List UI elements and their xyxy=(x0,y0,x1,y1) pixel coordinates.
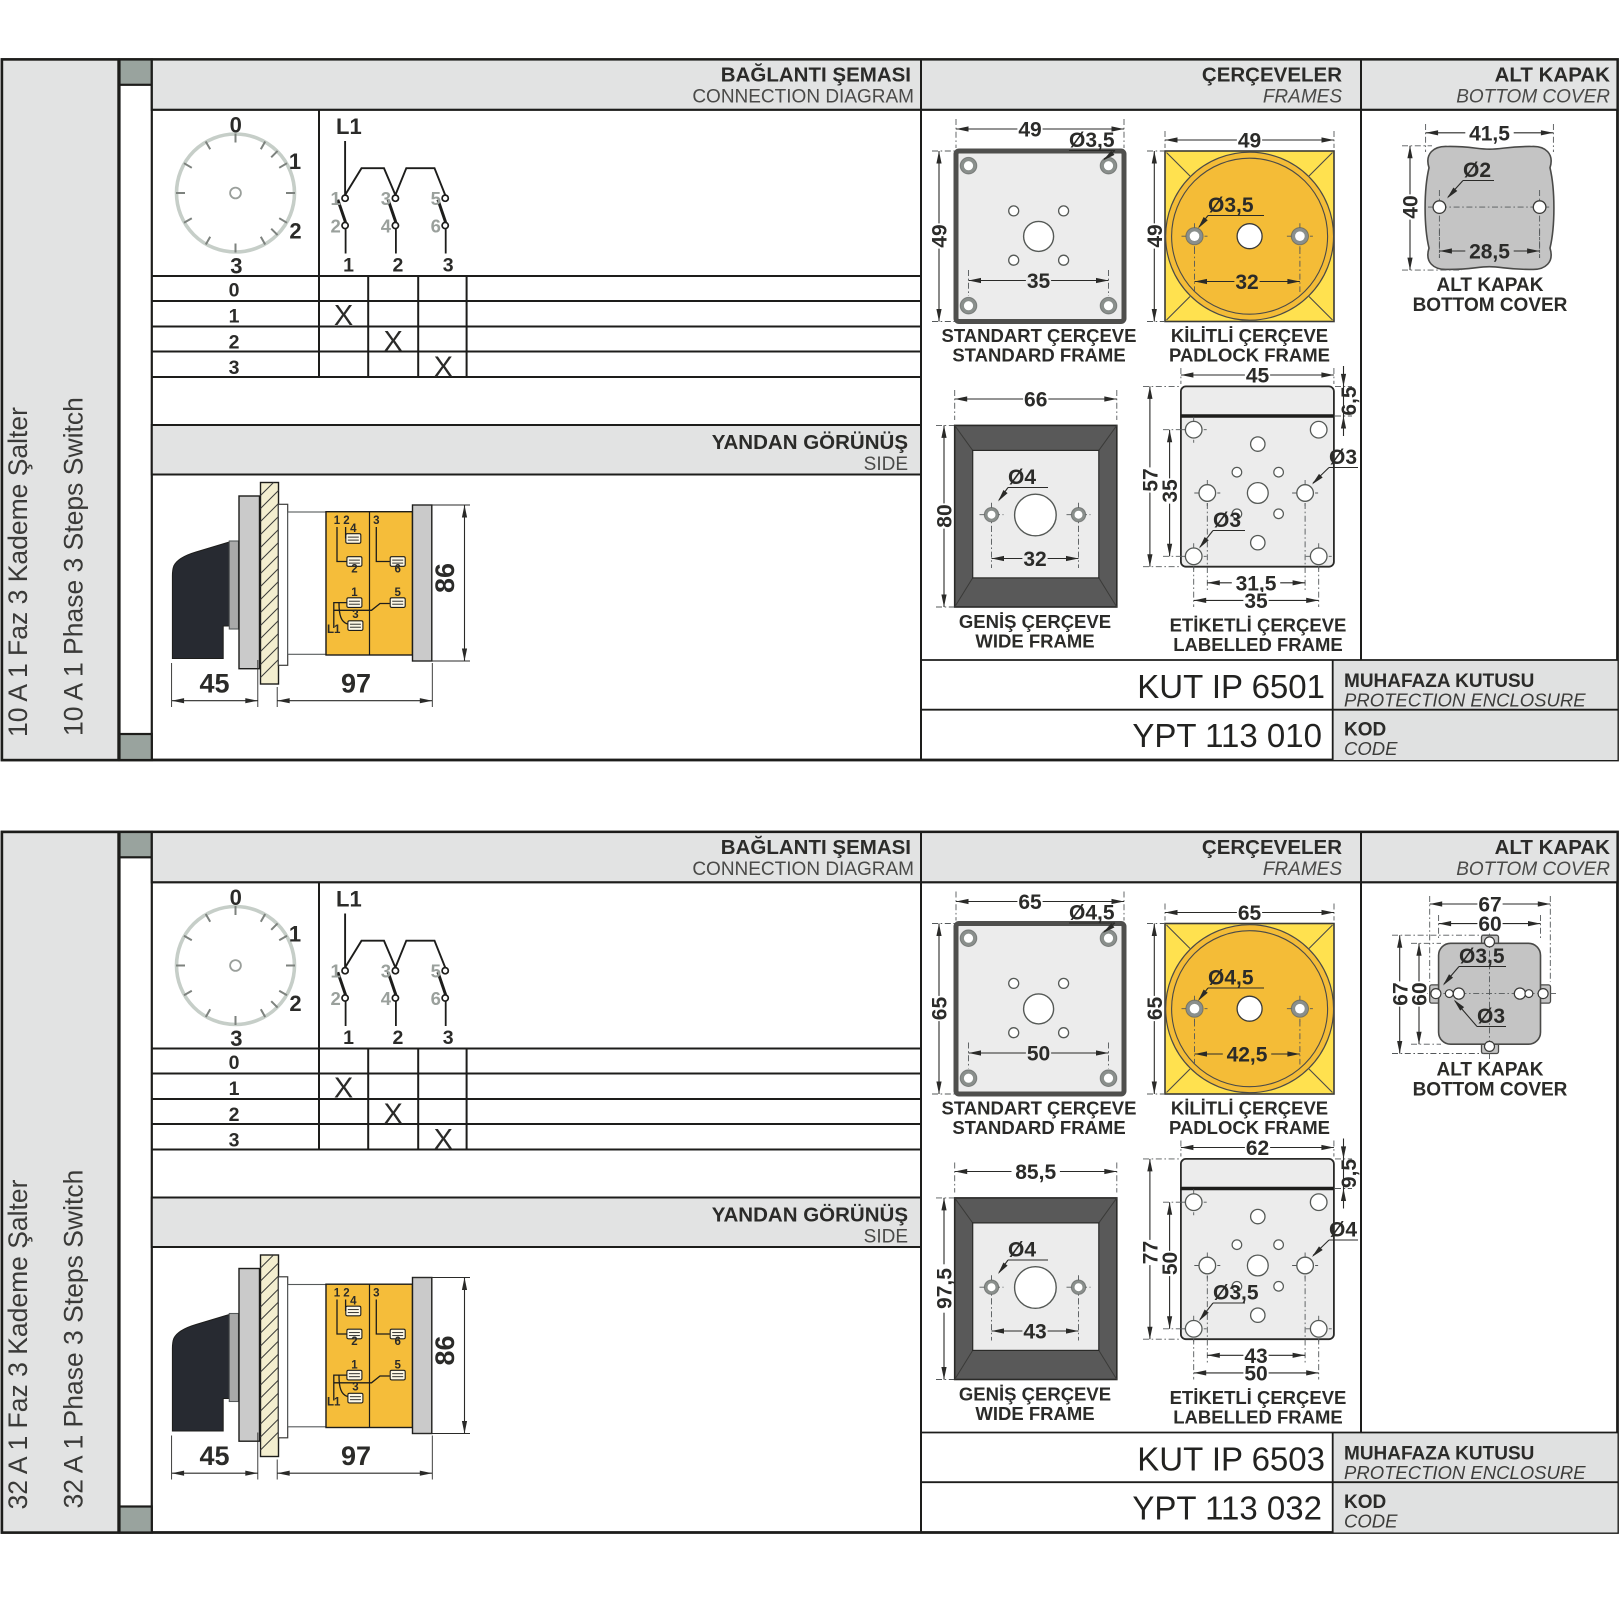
svg-text:60: 60 xyxy=(1409,982,1432,1005)
svg-text:WIDE FRAME: WIDE FRAME xyxy=(975,1403,1094,1424)
svg-text:6,5: 6,5 xyxy=(1338,386,1361,416)
svg-text:BAĞLANTI ŞEMASI: BAĞLANTI ŞEMASI xyxy=(721,63,911,87)
svg-text:Ø4: Ø4 xyxy=(1008,466,1036,489)
svg-text:66: 66 xyxy=(1024,389,1047,412)
svg-text:FRAMES: FRAMES xyxy=(1263,859,1343,880)
svg-text:4: 4 xyxy=(350,1296,357,1308)
svg-text:1: 1 xyxy=(229,1078,240,1100)
svg-text:65: 65 xyxy=(1238,902,1262,925)
svg-text:2: 2 xyxy=(229,332,240,354)
svg-text:3: 3 xyxy=(230,254,242,279)
svg-text:STANDARD FRAME: STANDARD FRAME xyxy=(952,1117,1125,1138)
svg-text:GENİŞ ÇERÇEVE: GENİŞ ÇERÇEVE xyxy=(959,1384,1111,1405)
svg-text:32: 32 xyxy=(1235,271,1258,294)
svg-text:BOTTOM COVER: BOTTOM COVER xyxy=(1456,87,1610,108)
svg-text:ETİKETLİ ÇERÇEVE: ETİKETLİ ÇERÇEVE xyxy=(1170,615,1347,636)
svg-text:LABELLED FRAME: LABELLED FRAME xyxy=(1173,634,1343,655)
svg-text:STANDARD FRAME: STANDARD FRAME xyxy=(952,345,1125,366)
svg-text:X: X xyxy=(334,300,353,332)
svg-text:Ø3: Ø3 xyxy=(1213,509,1241,532)
svg-text:49: 49 xyxy=(929,224,952,247)
svg-text:65: 65 xyxy=(929,997,952,1021)
svg-text:YPT 113 010: YPT 113 010 xyxy=(1132,717,1322,754)
svg-text:X: X xyxy=(384,1099,403,1131)
svg-text:10 A 1 Phase 3 Steps Switch: 10 A 1 Phase 3 Steps Switch xyxy=(59,397,89,736)
svg-text:L1: L1 xyxy=(327,624,341,636)
svg-text:2: 2 xyxy=(351,1336,357,1348)
svg-text:WIDE FRAME: WIDE FRAME xyxy=(975,631,1094,652)
svg-text:32 A 1 Phase 3 Steps Switch: 32 A 1 Phase 3 Steps Switch xyxy=(59,1170,89,1509)
svg-text:BOTTOM COVER: BOTTOM COVER xyxy=(1413,295,1568,316)
svg-text:65: 65 xyxy=(1144,997,1167,1021)
svg-text:2: 2 xyxy=(343,1288,349,1300)
svg-text:2: 2 xyxy=(392,1027,403,1049)
svg-text:6: 6 xyxy=(431,215,441,236)
svg-text:1: 1 xyxy=(289,921,301,946)
svg-text:2: 2 xyxy=(331,215,341,236)
svg-text:3: 3 xyxy=(373,1288,379,1300)
svg-text:3: 3 xyxy=(229,1130,240,1152)
svg-text:4: 4 xyxy=(350,523,357,535)
svg-text:CONNECTION DIAGRAM: CONNECTION DIAGRAM xyxy=(692,87,914,108)
svg-text:4: 4 xyxy=(381,988,392,1009)
svg-text:5: 5 xyxy=(431,188,441,209)
svg-text:6: 6 xyxy=(394,564,400,576)
svg-text:60: 60 xyxy=(1478,913,1501,936)
svg-text:0: 0 xyxy=(229,280,240,302)
svg-text:5: 5 xyxy=(431,961,441,982)
svg-text:5: 5 xyxy=(394,1360,401,1372)
svg-text:KUT IP 6501: KUT IP 6501 xyxy=(1137,668,1325,705)
svg-text:ALT KAPAK: ALT KAPAK xyxy=(1437,275,1544,296)
svg-text:86: 86 xyxy=(430,1335,460,1365)
svg-text:2: 2 xyxy=(331,988,341,1009)
svg-text:ALT KAPAK: ALT KAPAK xyxy=(1437,1060,1544,1081)
svg-text:1: 1 xyxy=(331,961,341,982)
svg-text:49: 49 xyxy=(1018,119,1041,142)
svg-text:1: 1 xyxy=(334,515,341,527)
svg-text:32: 32 xyxy=(1023,548,1046,571)
svg-text:Ø4,5: Ø4,5 xyxy=(1069,902,1115,925)
svg-text:5: 5 xyxy=(394,587,401,599)
svg-text:9,5: 9,5 xyxy=(1338,1159,1361,1189)
svg-text:KUT IP 6503: KUT IP 6503 xyxy=(1137,1441,1325,1478)
svg-text:L1: L1 xyxy=(327,1397,341,1409)
svg-text:50: 50 xyxy=(1244,1363,1267,1386)
svg-text:2: 2 xyxy=(343,515,349,527)
svg-text:50: 50 xyxy=(1159,1252,1182,1275)
svg-text:Ø4: Ø4 xyxy=(1008,1239,1036,1262)
svg-text:62: 62 xyxy=(1246,1137,1269,1160)
svg-text:50: 50 xyxy=(1027,1043,1050,1066)
svg-text:2: 2 xyxy=(289,218,301,243)
svg-text:3: 3 xyxy=(230,1026,242,1051)
svg-text:Ø3: Ø3 xyxy=(1329,446,1357,469)
svg-text:65: 65 xyxy=(1018,891,1042,914)
svg-text:CONNECTION DIAGRAM: CONNECTION DIAGRAM xyxy=(692,859,914,880)
svg-text:1: 1 xyxy=(334,1288,341,1300)
svg-text:YANDAN GÖRÜNÜŞ: YANDAN GÖRÜNÜŞ xyxy=(712,1204,908,1227)
svg-text:0: 0 xyxy=(229,1052,240,1074)
svg-text:ÇERÇEVELER: ÇERÇEVELER xyxy=(1202,836,1342,859)
svg-text:3: 3 xyxy=(229,357,240,379)
svg-text:L1: L1 xyxy=(336,887,362,912)
svg-text:PROTECTION ENCLOSURE: PROTECTION ENCLOSURE xyxy=(1344,690,1586,711)
svg-text:0: 0 xyxy=(230,885,242,910)
svg-text:SIDE: SIDE xyxy=(864,454,908,475)
svg-text:ÇERÇEVELER: ÇERÇEVELER xyxy=(1202,64,1342,87)
svg-text:L1: L1 xyxy=(336,114,362,139)
svg-text:Ø3: Ø3 xyxy=(1477,1005,1505,1028)
svg-text:BOTTOM COVER: BOTTOM COVER xyxy=(1456,859,1610,880)
svg-text:97: 97 xyxy=(341,1441,371,1471)
svg-text:42,5: 42,5 xyxy=(1227,1044,1268,1067)
svg-text:6: 6 xyxy=(431,988,441,1009)
svg-text:Ø4: Ø4 xyxy=(1329,1219,1357,1242)
svg-text:1: 1 xyxy=(229,306,240,328)
svg-text:Ø4,5: Ø4,5 xyxy=(1208,967,1254,990)
svg-text:PADLOCK FRAME: PADLOCK FRAME xyxy=(1169,345,1330,366)
svg-text:STANDART ÇERÇEVE: STANDART ÇERÇEVE xyxy=(942,1098,1137,1119)
svg-text:32 A 1 Faz 3 Kademe Şalter: 32 A 1 Faz 3 Kademe Şalter xyxy=(3,1179,33,1509)
svg-text:3: 3 xyxy=(373,515,379,527)
svg-text:2: 2 xyxy=(351,564,357,576)
svg-text:3: 3 xyxy=(381,961,391,982)
svg-text:97: 97 xyxy=(341,669,371,699)
svg-text:FRAMES: FRAMES xyxy=(1263,87,1343,108)
svg-text:28,5: 28,5 xyxy=(1469,241,1510,264)
svg-text:85,5: 85,5 xyxy=(1015,1161,1056,1184)
svg-text:0: 0 xyxy=(230,113,242,138)
svg-text:35: 35 xyxy=(1159,479,1182,503)
svg-text:X: X xyxy=(384,326,403,358)
svg-text:40: 40 xyxy=(1400,195,1423,218)
svg-text:STANDART ÇERÇEVE: STANDART ÇERÇEVE xyxy=(942,325,1137,346)
svg-text:ETİKETLİ ÇERÇEVE: ETİKETLİ ÇERÇEVE xyxy=(1170,1387,1347,1408)
svg-text:PADLOCK FRAME: PADLOCK FRAME xyxy=(1169,1117,1330,1138)
svg-text:97,5: 97,5 xyxy=(934,1268,957,1309)
svg-text:KİLİTLİ ÇERÇEVE: KİLİTLİ ÇERÇEVE xyxy=(1171,325,1328,346)
svg-text:BOTTOM COVER: BOTTOM COVER xyxy=(1413,1080,1568,1101)
svg-text:80: 80 xyxy=(934,504,957,527)
svg-text:Ø2: Ø2 xyxy=(1463,159,1491,182)
svg-text:Ø3,5: Ø3,5 xyxy=(1213,1282,1259,1305)
svg-text:86: 86 xyxy=(430,563,460,593)
svg-text:GENİŞ ÇERÇEVE: GENİŞ ÇERÇEVE xyxy=(959,611,1111,632)
svg-text:45: 45 xyxy=(199,1441,229,1471)
svg-text:3: 3 xyxy=(443,255,454,277)
svg-text:41,5: 41,5 xyxy=(1469,122,1510,145)
svg-text:1: 1 xyxy=(351,1360,358,1372)
svg-text:3: 3 xyxy=(352,609,358,621)
svg-text:1: 1 xyxy=(343,1027,354,1049)
svg-text:Ø3,5: Ø3,5 xyxy=(1069,129,1115,152)
svg-text:CODE: CODE xyxy=(1344,1511,1398,1532)
svg-text:YPT 113 032: YPT 113 032 xyxy=(1132,1490,1322,1527)
svg-text:1: 1 xyxy=(343,255,354,277)
svg-text:45: 45 xyxy=(199,669,229,699)
svg-text:1: 1 xyxy=(331,188,341,209)
svg-text:10 A 1 Faz 3 Kademe Şalter: 10 A 1 Faz 3 Kademe Şalter xyxy=(3,407,33,737)
svg-text:4: 4 xyxy=(381,215,392,236)
svg-text:49: 49 xyxy=(1238,130,1261,153)
svg-text:YANDAN GÖRÜNÜŞ: YANDAN GÖRÜNÜŞ xyxy=(712,431,908,454)
svg-text:PROTECTION ENCLOSURE: PROTECTION ENCLOSURE xyxy=(1344,1462,1586,1483)
svg-text:2: 2 xyxy=(229,1104,240,1126)
svg-text:LABELLED FRAME: LABELLED FRAME xyxy=(1173,1407,1343,1428)
svg-text:49: 49 xyxy=(1144,224,1167,247)
svg-text:3: 3 xyxy=(352,1382,358,1394)
svg-text:1: 1 xyxy=(351,587,358,599)
svg-text:Ø3,5: Ø3,5 xyxy=(1459,945,1505,968)
svg-text:1: 1 xyxy=(289,149,301,174)
svg-text:3: 3 xyxy=(381,188,391,209)
svg-text:35: 35 xyxy=(1027,270,1051,293)
svg-text:ALT KAPAK: ALT KAPAK xyxy=(1495,836,1611,859)
svg-text:KİLİTLİ ÇERÇEVE: KİLİTLİ ÇERÇEVE xyxy=(1171,1098,1328,1119)
svg-text:43: 43 xyxy=(1023,1321,1046,1344)
svg-text:Ø3,5: Ø3,5 xyxy=(1208,194,1254,217)
svg-text:BAĞLANTI ŞEMASI: BAĞLANTI ŞEMASI xyxy=(721,835,911,859)
svg-text:CODE: CODE xyxy=(1344,738,1398,759)
svg-text:SIDE: SIDE xyxy=(864,1227,908,1248)
svg-text:X: X xyxy=(434,1124,453,1156)
svg-text:45: 45 xyxy=(1246,365,1270,388)
svg-text:X: X xyxy=(334,1073,353,1105)
svg-text:35: 35 xyxy=(1244,590,1268,613)
svg-text:2: 2 xyxy=(392,255,403,277)
svg-text:2: 2 xyxy=(289,991,301,1016)
svg-text:3: 3 xyxy=(443,1027,454,1049)
svg-text:ALT KAPAK: ALT KAPAK xyxy=(1495,64,1611,87)
svg-text:6: 6 xyxy=(394,1336,400,1348)
svg-text:X: X xyxy=(434,351,453,383)
